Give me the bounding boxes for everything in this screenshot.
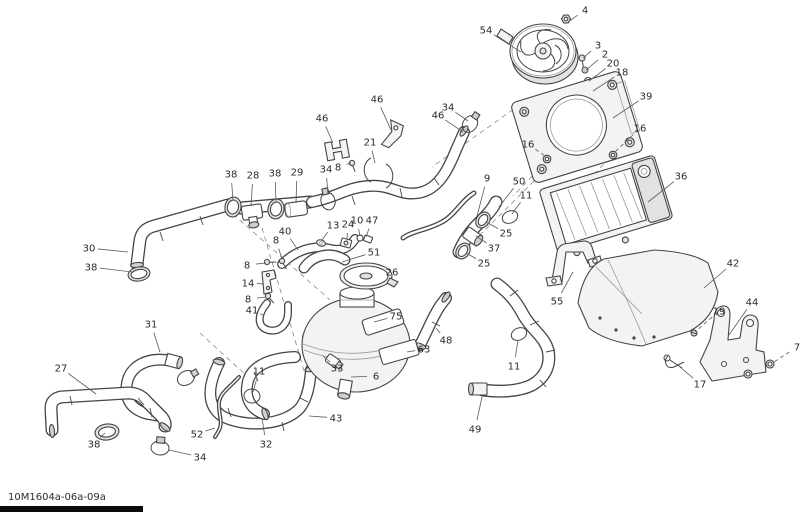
- callout-leader: [290, 238, 298, 250]
- callout-label: 38: [88, 440, 101, 451]
- band-clamp-38: [127, 265, 151, 283]
- callout-label: 30: [83, 244, 96, 255]
- callout-leader: [100, 268, 132, 272]
- callout-label: 49: [469, 425, 482, 436]
- callout-label: 19: [713, 307, 726, 318]
- callout-label: 14: [242, 279, 255, 290]
- callout-label: 75: [390, 312, 403, 323]
- callout-leader: [206, 428, 215, 431]
- callout-label: 7: [794, 343, 800, 354]
- screw-8: [347, 159, 360, 171]
- clamps: [94, 109, 529, 455]
- cooling-fan: [497, 24, 578, 84]
- bracket-46: [380, 120, 405, 150]
- washer-2: [582, 67, 588, 73]
- callout-label: 36: [675, 172, 688, 183]
- clamp-47: [363, 235, 373, 243]
- screw-8: [263, 256, 276, 269]
- callout-label: 3: [595, 41, 601, 52]
- callout-label: 21: [364, 138, 377, 149]
- callout-label: 40: [279, 227, 292, 238]
- callout-leader: [279, 249, 282, 259]
- flange-nut-7: [744, 370, 752, 378]
- callout-leader: [381, 107, 391, 130]
- bracket-14: [262, 270, 276, 294]
- callout-label: 16: [522, 140, 535, 151]
- callout-label: 8: [335, 163, 341, 174]
- callout-label: 33: [331, 364, 344, 375]
- reservoir-bottom-outlet: [337, 379, 352, 400]
- bolt-16: [609, 151, 617, 159]
- bracket-46: [325, 139, 350, 161]
- callout-label: 8: [244, 261, 250, 272]
- callout-leader: [169, 450, 191, 455]
- callout-label: 39: [640, 92, 653, 103]
- callout-label: 4: [582, 6, 588, 17]
- callout-label: 9: [484, 174, 490, 185]
- callout-label: 16: [634, 124, 647, 135]
- callout-label: 10: [351, 216, 364, 227]
- parts-diagram-page: 4543220183916163695011253725344646214634…: [0, 0, 800, 512]
- nut-4: [562, 15, 571, 23]
- callout-leader: [322, 232, 328, 240]
- callout-label: 34: [194, 453, 207, 464]
- callout-label: 52: [191, 430, 204, 441]
- callout-label: 47: [366, 216, 379, 227]
- callout-label: 38: [269, 169, 282, 180]
- hose-49: [483, 284, 549, 391]
- callout-leader: [309, 416, 327, 417]
- callout-label: 11: [520, 191, 533, 202]
- callout-label: 51: [368, 248, 381, 259]
- callout-label: 28: [247, 171, 260, 182]
- flange-nut-7: [766, 360, 774, 368]
- callout-label: 26: [386, 268, 399, 279]
- callout-label: 55: [551, 297, 564, 308]
- callout-leader: [372, 151, 375, 163]
- clamp-half-21: [364, 158, 371, 182]
- callout-label: 63: [418, 345, 431, 356]
- callout-label: 31: [145, 320, 158, 331]
- callout-label: 18: [616, 68, 629, 79]
- tee-fitting-28: [241, 204, 264, 230]
- hose-piece-29: [284, 201, 308, 218]
- callout-label: 17: [694, 380, 707, 391]
- callout-label: 54: [480, 26, 493, 37]
- callout-leader: [586, 60, 598, 70]
- callout-label: 32: [260, 440, 273, 451]
- callout-leader: [477, 397, 482, 420]
- callout-label: 8: [273, 236, 279, 247]
- callout-leader: [515, 340, 518, 357]
- callout-label: 13: [327, 221, 340, 232]
- ring-11: [500, 208, 520, 226]
- callout-leader: [154, 333, 160, 352]
- bolt-16: [543, 155, 551, 163]
- callout-leader: [583, 51, 591, 58]
- retaining-clip-17: [664, 355, 684, 368]
- callout-leader: [445, 120, 463, 132]
- callout-label: 27: [55, 364, 68, 375]
- callout-label: 34: [320, 165, 333, 176]
- callout-label: 38: [225, 170, 238, 181]
- callout-leader: [680, 367, 693, 378]
- bottom-edge-bar: [0, 506, 143, 512]
- callout-leader: [257, 297, 266, 298]
- callout-label: 8: [245, 295, 251, 306]
- upper-left-hose: [137, 205, 228, 264]
- callout-label: 25: [500, 229, 513, 240]
- callout-leader: [436, 328, 440, 333]
- callout-label: 11: [253, 367, 266, 378]
- callout-label: 25: [478, 259, 491, 270]
- callout-label: 38: [85, 263, 98, 274]
- callout-label: 48: [440, 336, 453, 347]
- callout-label: 6: [373, 372, 379, 383]
- callout-leader: [499, 188, 514, 207]
- diagram-code: 10M1604a-06a-09a: [8, 492, 106, 503]
- coolant-reservoir: [301, 287, 410, 400]
- callout-leader: [455, 112, 468, 121]
- callout-label: 46: [316, 114, 329, 125]
- callout-label: 42: [727, 259, 740, 270]
- hose-end-cap: [49, 424, 55, 437]
- callout-label: 44: [746, 298, 759, 309]
- callout-label: 43: [330, 414, 343, 425]
- support-bracket-44: [700, 306, 766, 381]
- callout-leader: [326, 126, 333, 143]
- callout-leader: [98, 249, 128, 252]
- callout-label: 11: [508, 362, 521, 373]
- gear-clamp-34: [150, 436, 170, 456]
- callout-layer: 4543220183916163695011253725344646214634…: [55, 6, 800, 464]
- hose-end-cap: [469, 383, 474, 395]
- callout-label: 50: [513, 177, 526, 188]
- callout-label: 37: [488, 244, 501, 255]
- callout-label: 46: [432, 111, 445, 122]
- cooling-system-diagram: 4543220183916163695011253725344646214634…: [0, 0, 800, 512]
- callout-leader: [774, 352, 789, 362]
- callout-label: 29: [291, 168, 304, 179]
- callout-label: 41: [246, 306, 259, 317]
- callout-label: 46: [371, 95, 384, 106]
